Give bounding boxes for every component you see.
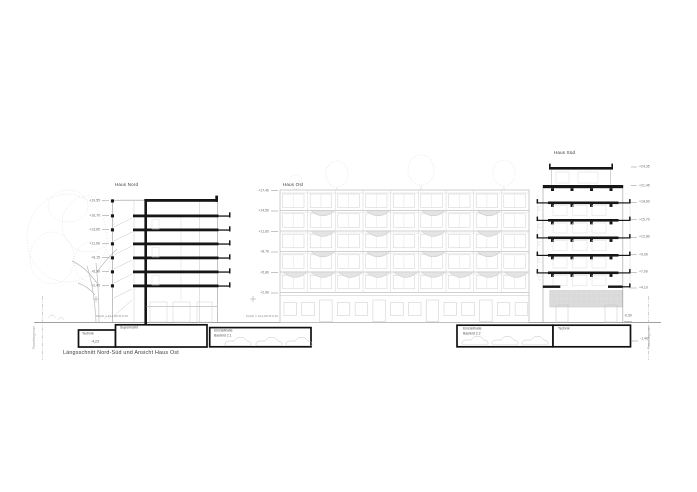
level-annotation: +11,00	[80, 242, 100, 246]
level-annotation: +2,45	[80, 284, 100, 288]
basement-level-technik-left: -4,23	[91, 340, 99, 343]
haus-sued-label: Haus Süd	[554, 150, 575, 155]
level-annotation: +12,80	[639, 235, 659, 239]
boundary-label-left: Parzellengrenze	[33, 326, 36, 349]
haus-sued-section	[537, 164, 631, 322]
haus-nord-label: Haus Nord	[115, 182, 138, 187]
level-annotation: +15,70	[639, 218, 659, 222]
haus-nord-section	[111, 196, 231, 347]
level-annotation: +8,15	[80, 256, 100, 260]
tree-sketch	[27, 190, 117, 322]
basement-label-supermarkt: Supermarkt	[120, 326, 138, 329]
level-annotation: +14,50	[249, 209, 269, 213]
level-annotation: +2,90	[249, 291, 269, 295]
datum-note: ±0,00 = 413,60 m ü.M.	[96, 315, 129, 318]
level-annotation: +4,10	[639, 286, 659, 290]
datum-note: ±0,00 = 413,60 m ü.M.	[246, 315, 279, 318]
level-annotation: +11,60	[249, 230, 269, 234]
basement-label-technik-right: Technik	[558, 327, 570, 330]
roof-trees	[290, 155, 515, 190]
level-annotation: +17,40	[249, 189, 269, 193]
boundary-label-right: Parzellengrenze	[647, 326, 650, 349]
basement-label-technik-left: Technik	[82, 332, 94, 335]
drawing-svg	[0, 0, 697, 492]
level-annotation: +16,70	[80, 214, 100, 218]
level-annotation: -0,50	[612, 314, 632, 318]
haus-ost-label: Haus Ost	[283, 182, 303, 187]
supermarkt-block	[550, 291, 622, 308]
basement-label-garage-right-2: Baufeld 2.2	[463, 332, 481, 335]
basement-label-garage-right-1: Einstellhalle	[463, 327, 482, 330]
level-annotation: +5,30	[80, 270, 100, 274]
level-annotation: +5,80	[249, 271, 269, 275]
haus-ost-elevation	[280, 155, 529, 323]
architectural-section-sheet: Haus Nord Haus Ost Haus Süd +19,55 +16,7…	[0, 0, 697, 492]
level-annotation: +9,90	[639, 253, 659, 257]
level-annotation: +8,70	[249, 250, 269, 254]
level-annotation: +7,00	[639, 270, 659, 274]
level-annotation: +21,45	[639, 184, 659, 188]
basement-label-garage-left-2: Baufeld 2.1	[214, 334, 232, 337]
level-annotation: +19,55	[80, 199, 100, 203]
sheet-caption: Längsschnitt Nord-Süd und Ansicht Haus O…	[63, 349, 179, 355]
level-annotation: +13,85	[80, 228, 100, 232]
basement-label-garage-left-1: Einstellhalle	[214, 329, 233, 332]
basement-boxes	[79, 325, 631, 347]
level-annotation: +18,60	[639, 200, 659, 204]
level-annotation: +24,35	[639, 165, 659, 169]
spot-level-markers	[93, 296, 256, 302]
